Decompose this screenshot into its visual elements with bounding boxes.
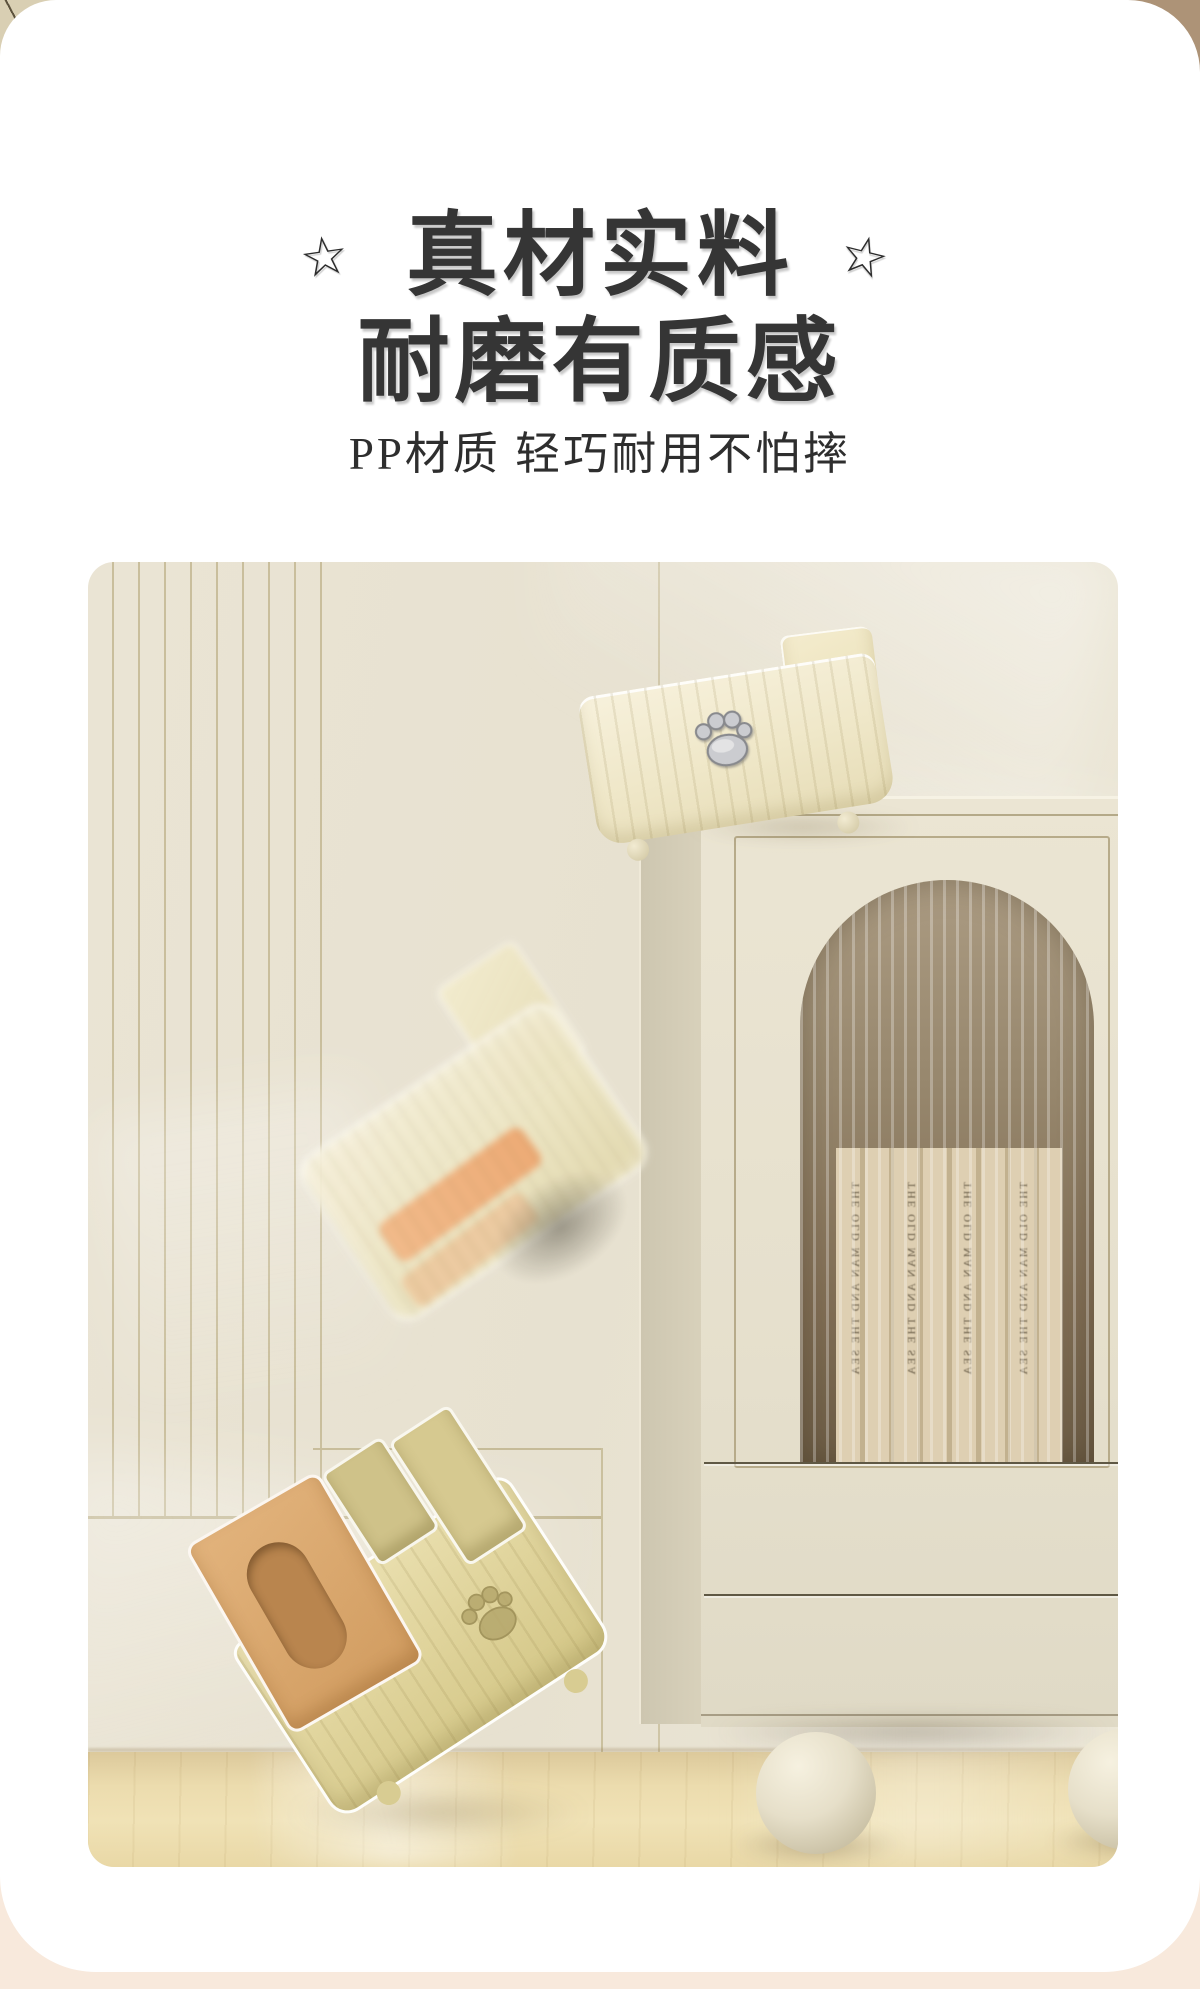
cabinet-side-panel <box>639 808 703 1724</box>
cabinet-bottom-trim <box>701 1714 1118 1716</box>
tissue-box-top <box>572 624 902 869</box>
cabinet-shadow <box>708 1718 1118 1752</box>
wood-floor-grain <box>88 1752 1118 1867</box>
box-body <box>292 996 655 1330</box>
page-subtitle: PP材质 轻巧耐用不怕摔 <box>0 432 1200 477</box>
inner-shadow <box>472 1145 650 1308</box>
paw-badge-icon <box>686 703 762 779</box>
product-photo: THE OLD MAN AND THE SEA THE OLD MAN AND … <box>88 562 1118 1867</box>
box-ball-foot <box>625 837 650 862</box>
tissue-slot <box>235 1531 358 1681</box>
cabinet-arch-window: THE OLD MAN AND THE SEA THE OLD MAN AND … <box>800 880 1094 1464</box>
product-detail-section: 真材实料 耐磨有质感 ☆ ☆ PP材质 轻巧耐用不怕摔 <box>0 0 1200 1989</box>
tissues-inside <box>376 1124 545 1265</box>
drawer-seam <box>704 1462 1118 1464</box>
wall-slat-panel <box>88 562 324 1518</box>
content-card: 真材实料 耐磨有质感 ☆ ☆ PP材质 轻巧耐用不怕摔 <box>0 0 1200 1972</box>
page-title-line-2: 耐磨有质感 <box>0 316 1200 408</box>
cabinet-ball-foot <box>756 1732 876 1854</box>
fluted-glass-ribs <box>800 880 1094 1464</box>
drawer-seam <box>704 1594 1118 1596</box>
page-title-line-1: 真材实料 <box>0 210 1200 302</box>
star-outline-icon-left: ☆ <box>296 227 351 287</box>
